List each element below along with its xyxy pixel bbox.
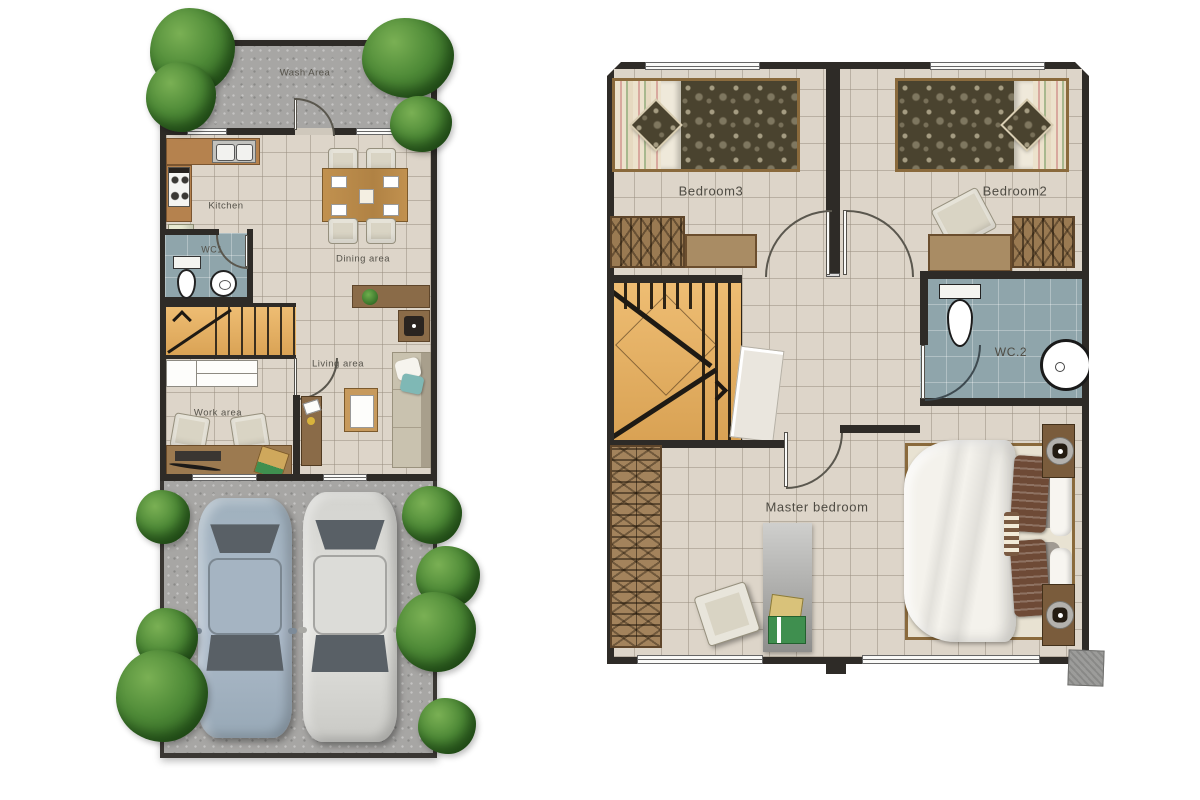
wc2-wall-top [920, 271, 1082, 279]
staircase [166, 307, 296, 357]
lamp-icon [1046, 437, 1074, 465]
tree [116, 650, 208, 742]
dining-chair [328, 218, 358, 244]
window [637, 655, 763, 664]
duvet [904, 440, 1016, 642]
toilet [173, 256, 201, 302]
wc1-wall-top [165, 229, 219, 235]
tree [418, 698, 476, 754]
door-swing-arc [765, 210, 832, 277]
ottoman [693, 581, 760, 647]
window [930, 62, 1045, 70]
window [323, 474, 367, 481]
work-desk [166, 445, 292, 477]
tree [362, 18, 454, 98]
work-area-label: Work area [194, 408, 242, 418]
bedroom2-label: Bedroom2 [983, 185, 1048, 198]
tree [390, 96, 452, 152]
dining-table [322, 168, 408, 222]
exterior-pad [1067, 649, 1104, 686]
kitchen-label: Kitchen [208, 201, 243, 211]
bedroom3-label: Bedroom3 [679, 185, 744, 198]
nightstand [1042, 424, 1075, 478]
stairs-wall-bottom [166, 355, 296, 359]
lamp-icon [1046, 601, 1074, 629]
toilet [939, 284, 981, 352]
tree [136, 490, 190, 544]
tree [146, 62, 216, 132]
staircase [614, 283, 742, 440]
bed-pillow [1004, 512, 1019, 556]
tree [402, 486, 462, 544]
dining-chair [366, 218, 396, 244]
stairs-up-arrow [172, 310, 192, 330]
sofa [392, 352, 431, 468]
upper-floor-plan: Bedroom3 Bedroom2 [607, 62, 1089, 664]
magazine [768, 616, 806, 644]
tree [396, 592, 476, 672]
window [356, 128, 394, 135]
living-area-label: Living area [312, 359, 364, 369]
stove [168, 167, 190, 207]
door-swing-arc [786, 432, 843, 489]
wall-stub [826, 658, 846, 674]
window [862, 655, 1040, 664]
bathroom-sink [1040, 339, 1092, 391]
tv-cabinet [352, 285, 430, 308]
nightstand [1042, 584, 1075, 646]
kitchen-sink [212, 140, 256, 163]
car [198, 498, 292, 738]
desk [928, 234, 1012, 272]
master-wall [840, 425, 920, 433]
wc1-label: WC1 [201, 246, 223, 255]
window [645, 62, 760, 70]
master-bedroom-label: Master bedroom [765, 501, 868, 514]
storage-cabinet [166, 360, 258, 387]
coffee-table [344, 388, 378, 432]
window [192, 474, 257, 481]
wc2-wall-bottom [920, 398, 1082, 406]
side-table [398, 310, 430, 342]
wash-area-label: Wash Area [280, 68, 331, 78]
closet [610, 445, 662, 648]
bookshelf [301, 396, 322, 466]
ground-floor-plan: Wash Area Kitchen D [160, 40, 437, 758]
wc2-label: WC.2 [995, 346, 1027, 358]
plant-icon [362, 289, 378, 305]
desk [685, 234, 757, 268]
bathroom-sink [210, 270, 237, 297]
single-bed [895, 78, 1069, 172]
floor-plan-canvas: Wash Area Kitchen D [0, 0, 1200, 800]
wc2-wall-left [920, 278, 928, 345]
dining-area-label: Dining area [336, 254, 390, 264]
sofa-pillow [399, 373, 424, 395]
car [303, 492, 397, 742]
partition-wall [293, 395, 300, 481]
wardrobe [1012, 216, 1075, 268]
stairs-wall-top [607, 275, 742, 283]
wardrobe [610, 216, 685, 268]
door-swing-arc [847, 210, 914, 277]
single-bed [612, 78, 800, 172]
